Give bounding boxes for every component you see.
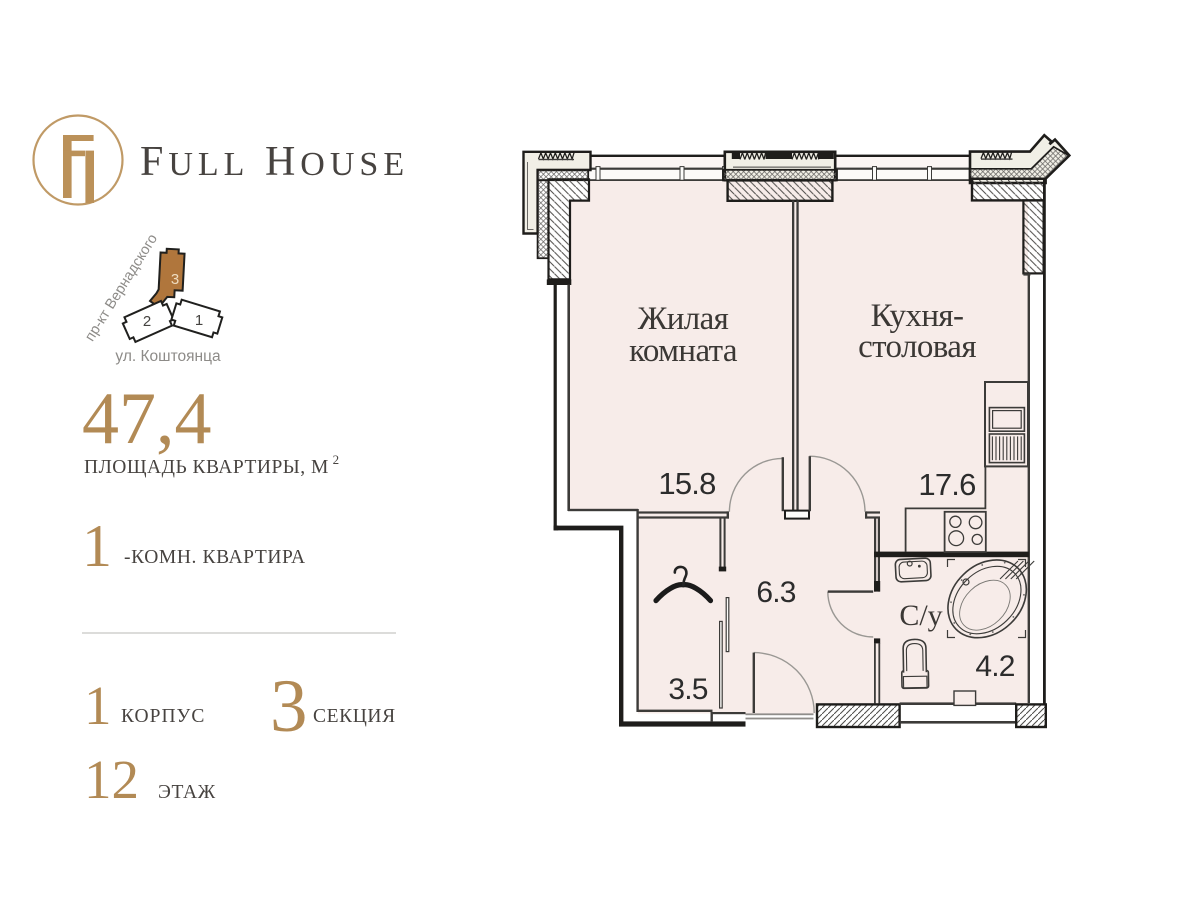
svg-text:столовая: столовая bbox=[858, 329, 976, 365]
svg-text:3.5: 3.5 bbox=[668, 673, 707, 706]
svg-text:Жилая: Жилая bbox=[638, 301, 729, 337]
svg-text:17.6: 17.6 bbox=[918, 467, 975, 502]
svg-text:15.8: 15.8 bbox=[658, 466, 715, 501]
svg-text:4.2: 4.2 bbox=[975, 650, 1014, 683]
svg-text:комната: комната bbox=[629, 333, 738, 369]
svg-text:С/у: С/у bbox=[899, 599, 942, 632]
svg-text:6.3: 6.3 bbox=[756, 576, 795, 609]
